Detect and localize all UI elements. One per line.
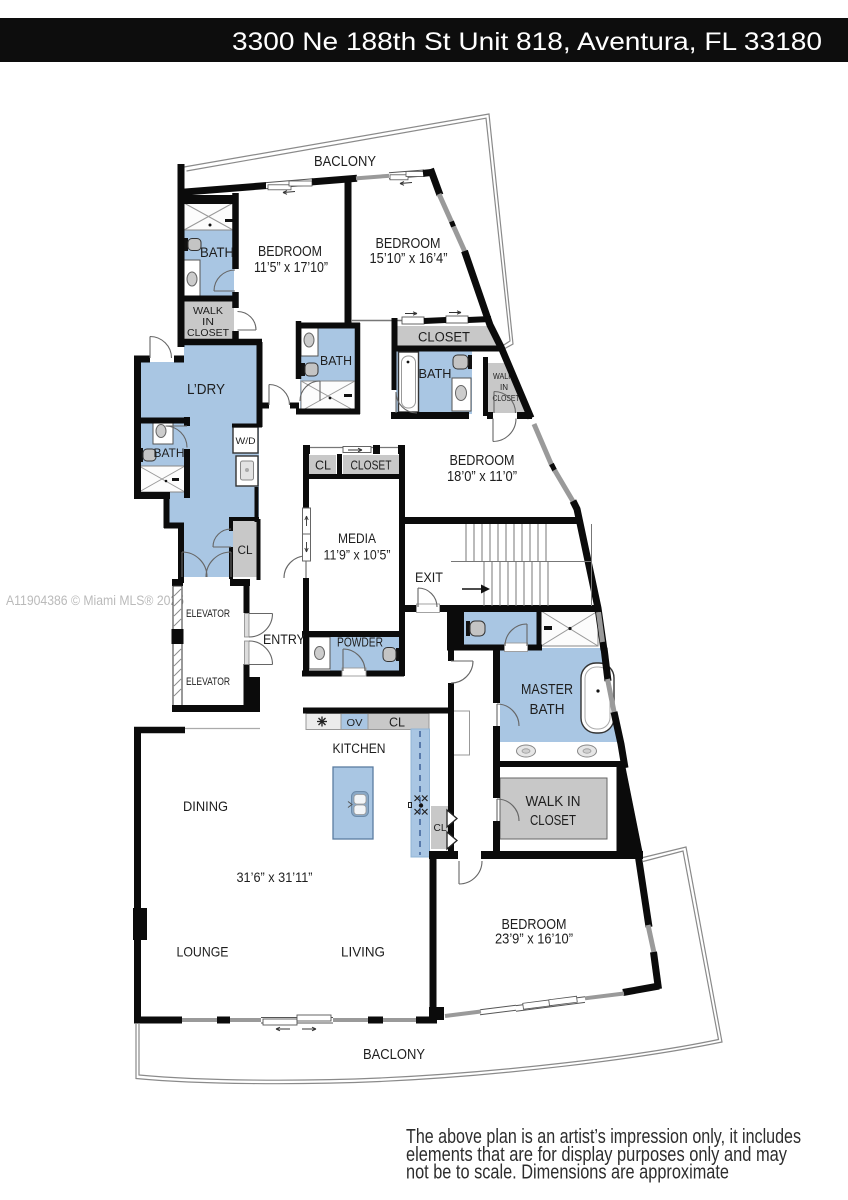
- svg-text:CLOSET: CLOSET: [530, 812, 576, 829]
- svg-text:LOUNGE: LOUNGE: [177, 944, 229, 960]
- svg-text:CL: CL: [434, 823, 447, 834]
- svg-text:ENTRY: ENTRY: [263, 632, 305, 647]
- svg-text:ELEVATOR: ELEVATOR: [186, 676, 230, 688]
- svg-text:ELEVATOR: ELEVATOR: [186, 608, 230, 620]
- svg-text:15’10” x 16’4”: 15’10” x 16’4”: [370, 250, 448, 267]
- svg-text:EXIT: EXIT: [415, 570, 443, 585]
- svg-text:OV: OV: [347, 717, 363, 729]
- svg-text:KITCHEN: KITCHEN: [333, 741, 386, 756]
- svg-text:31’6” x 31’11”: 31’6” x 31’11”: [237, 869, 313, 885]
- svg-text:WALK: WALK: [193, 306, 223, 317]
- svg-text:BEDROOM: BEDROOM: [450, 452, 515, 469]
- svg-text:not be to scale. Dimensions ar: not be to scale. Dimensions are approxim…: [406, 1162, 729, 1184]
- svg-text:BATH: BATH: [530, 702, 565, 718]
- svg-text:CLOSET: CLOSET: [418, 330, 470, 345]
- svg-text:BACLONY: BACLONY: [314, 153, 376, 170]
- svg-text:CL: CL: [238, 543, 253, 557]
- svg-text:18’0” x 11’0”: 18’0” x 11’0”: [447, 468, 517, 485]
- svg-text:BATH: BATH: [200, 245, 234, 260]
- svg-text:BEDROOM: BEDROOM: [258, 243, 322, 260]
- svg-text:CLOSET: CLOSET: [187, 328, 229, 339]
- svg-text:MASTER: MASTER: [521, 682, 573, 698]
- svg-text:CL: CL: [389, 715, 405, 730]
- svg-text:BATH: BATH: [154, 446, 185, 460]
- svg-text:WALK IN: WALK IN: [526, 793, 581, 810]
- svg-text:11’9” x 10’5”: 11’9” x 10’5”: [324, 548, 391, 563]
- svg-text:A11904386 © Miami MLS® 2025: A11904386 © Miami MLS® 2025: [6, 593, 184, 608]
- svg-text:3300 Ne 188th St Unit 818, Ave: 3300 Ne 188th St Unit 818, Aventura, FL …: [232, 28, 822, 56]
- svg-text:11’5” x 17’10”: 11’5” x 17’10”: [254, 259, 328, 276]
- svg-text:BATH: BATH: [320, 354, 352, 368]
- svg-text:BATH: BATH: [419, 367, 452, 381]
- svg-text:IN: IN: [202, 317, 214, 328]
- svg-text:DINING: DINING: [183, 798, 228, 814]
- svg-text:BACLONY: BACLONY: [363, 1046, 425, 1063]
- svg-text:LIVING: LIVING: [341, 944, 385, 960]
- svg-text:23’9” x 16’10”: 23’9” x 16’10”: [495, 931, 573, 948]
- svg-text:L’DRY: L’DRY: [187, 382, 225, 398]
- svg-text:CLOSET: CLOSET: [351, 458, 392, 473]
- svg-text:CL: CL: [315, 459, 331, 473]
- svg-text:POWDER: POWDER: [337, 636, 383, 650]
- svg-text:MEDIA: MEDIA: [338, 531, 376, 546]
- svg-text:W/D: W/D: [236, 436, 256, 447]
- svg-text:IN: IN: [500, 383, 508, 392]
